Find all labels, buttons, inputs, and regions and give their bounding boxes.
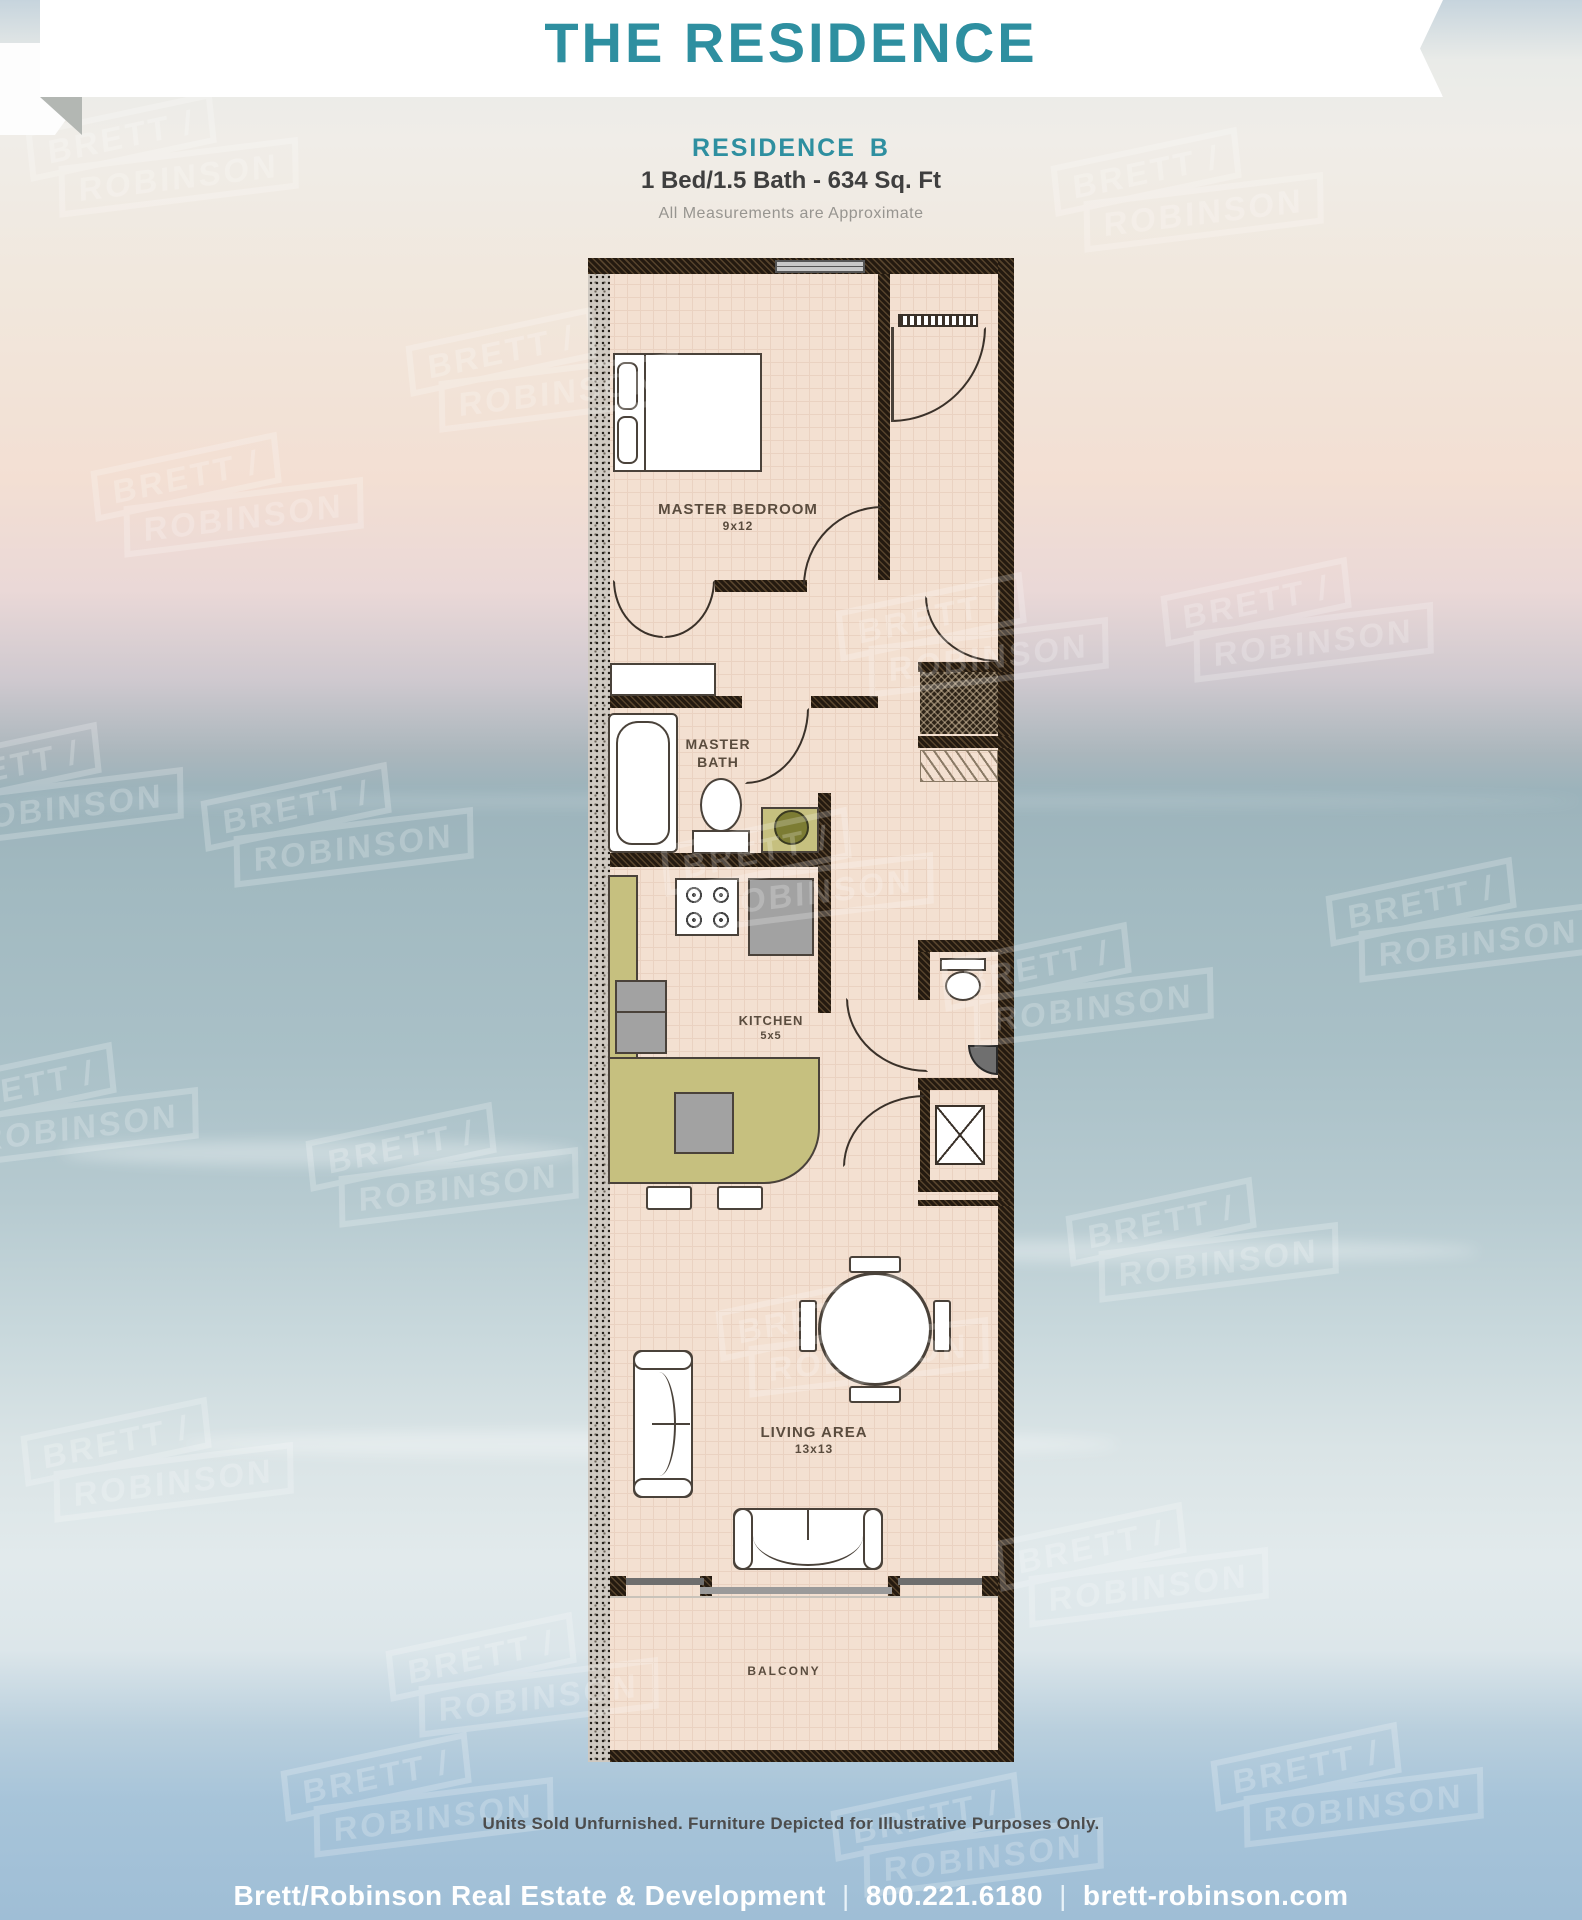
dining-table — [818, 1272, 932, 1386]
label-master-bath-1: MASTER — [685, 736, 750, 752]
brett-robinson-watermark: BRETT /ROBINSON — [199, 755, 477, 895]
wall-hallcloset-bottom — [918, 736, 1014, 748]
loveseat-arm — [633, 1478, 693, 1498]
wall-left — [588, 274, 610, 1762]
brett-robinson-watermark: BRETT /ROBINSON — [0, 715, 187, 855]
footer-website: brett-robinson.com — [1083, 1880, 1349, 1911]
label-kitchen-dims: 5x5 — [760, 1030, 781, 1042]
bed-headboard-line — [644, 355, 646, 470]
wave-streak — [60, 1140, 580, 1166]
loveseat-arm — [633, 1350, 693, 1370]
footer-company: Brett/Robinson Real Estate & Development — [233, 1880, 826, 1911]
wire-shelf — [920, 750, 998, 782]
pillow — [617, 416, 638, 464]
corner-basin — [774, 810, 809, 845]
bath-sink — [700, 778, 742, 832]
footer-contact-line: Brett/Robinson Real Estate & Development… — [0, 1880, 1582, 1912]
flyer-page: THE RESIDENCE RESIDENCEB 1 Bed/1.5 Bath … — [0, 0, 1582, 1920]
label-master-bedroom: MASTER BEDROOM — [658, 501, 818, 518]
wall-laundry-bottom2 — [918, 1200, 1014, 1206]
slider-panel — [898, 1578, 982, 1585]
label-balcony: BALCONY — [747, 1664, 820, 1678]
wall-bath-top-right — [811, 696, 878, 708]
closet-door-left-arc — [613, 580, 664, 638]
laundry-door-arc — [843, 1095, 925, 1167]
label-living-area: LIVING AREA — [760, 1424, 867, 1441]
slider-post — [610, 1576, 626, 1596]
corner-sink — [968, 1045, 998, 1075]
wall-bath-bottom — [610, 853, 820, 867]
toilet-tank — [940, 958, 986, 971]
slider-panel — [700, 1587, 892, 1594]
label-kitchen: KITCHEN — [739, 1013, 804, 1028]
toilet-bowl — [945, 971, 981, 1001]
wall-kitchen-hall — [818, 793, 831, 1013]
slider-post — [982, 1576, 998, 1596]
sofa-arm — [863, 1508, 883, 1570]
brett-robinson-watermark: BRETT /ROBINSON — [994, 1495, 1272, 1635]
halfbath-door-arc — [846, 998, 928, 1072]
label-master-bedroom-dims: 9x12 — [723, 519, 754, 533]
dining-chair — [933, 1300, 951, 1352]
brett-robinson-watermark: BRETT /ROBINSON — [279, 1725, 557, 1865]
brett-robinson-watermark: BRETT /ROBINSON — [1159, 550, 1437, 690]
brett-robinson-watermark: BRETT /ROBINSON — [1209, 1715, 1487, 1855]
dining-chair — [849, 1386, 901, 1403]
footer-phone: 800.221.6180 — [866, 1880, 1043, 1911]
water-heater-box — [935, 1105, 985, 1165]
wall-halfbath-bottom — [918, 1078, 1014, 1090]
stove-burners — [677, 880, 737, 934]
sofa-cushion-line — [807, 1510, 809, 1540]
bath-door-arc — [745, 708, 809, 784]
brett-robinson-watermark: BRETT /ROBINSON — [19, 1390, 297, 1530]
page-title: THE RESIDENCE — [0, 10, 1582, 75]
wall-hallcloset-top — [918, 662, 1014, 672]
closet-door-right-arc — [664, 580, 715, 638]
wall-bath-top-left — [610, 696, 742, 708]
disclaimer-text: Units Sold Unfurnished. Furniture Depict… — [0, 1814, 1582, 1834]
wall-right — [998, 258, 1014, 1762]
footer-separator: | — [842, 1880, 850, 1911]
label-living-area-dims: 13x13 — [795, 1442, 833, 1456]
dining-chair — [849, 1256, 901, 1273]
residence-heading: RESIDENCEB — [0, 134, 1582, 163]
hall-closet-door-arc — [925, 596, 998, 662]
island-sink — [674, 1092, 734, 1154]
floor-plan: MASTER BEDROOM 9x12 MASTER BATH KITCHEN … — [588, 258, 1014, 1762]
bar-stool — [646, 1186, 692, 1210]
residence-unit: B — [870, 134, 890, 162]
residence-label: RESIDENCE — [692, 134, 856, 162]
refrigerator-divider — [617, 1011, 665, 1013]
slider-panel — [626, 1578, 704, 1585]
entry-door-leaf — [891, 327, 894, 422]
wall-closet — [715, 580, 807, 592]
label-master-bath-2: BATH — [697, 754, 739, 770]
brett-robinson-watermark: BRETT /ROBINSON — [89, 425, 367, 565]
stove — [675, 878, 739, 936]
measurements-note: All Measurements are Approximate — [0, 205, 1582, 223]
wall-halfbath-left — [918, 952, 930, 1000]
bar-stool — [717, 1186, 763, 1210]
unit-specs: 1 Bed/1.5 Bath - 634 Sq. Ft — [0, 167, 1582, 195]
balcony-rail — [610, 1750, 998, 1762]
slider-track — [610, 1596, 998, 1598]
loveseat-cushion-line — [652, 1423, 690, 1425]
refrigerator — [615, 980, 667, 1054]
dining-chair — [799, 1300, 817, 1352]
entry-door-arc — [891, 327, 986, 422]
bedroom-window — [775, 260, 865, 273]
hall-closet-hatch — [920, 672, 998, 734]
sofa-arm — [733, 1508, 753, 1570]
closet-vanity — [610, 663, 716, 696]
wall-halfbath-top — [918, 940, 1014, 952]
bath-vanity — [692, 830, 750, 854]
bathtub-inner — [616, 721, 670, 845]
pillow — [617, 362, 638, 410]
entry-threshold — [898, 314, 978, 327]
bedroom-door-arc — [803, 506, 883, 586]
footer-separator: | — [1059, 1880, 1067, 1911]
brett-robinson-watermark: BRETT /ROBINSON — [1324, 850, 1582, 990]
kitchen-sink-counter — [748, 878, 814, 956]
wall-laundry-bottom — [918, 1180, 1014, 1192]
